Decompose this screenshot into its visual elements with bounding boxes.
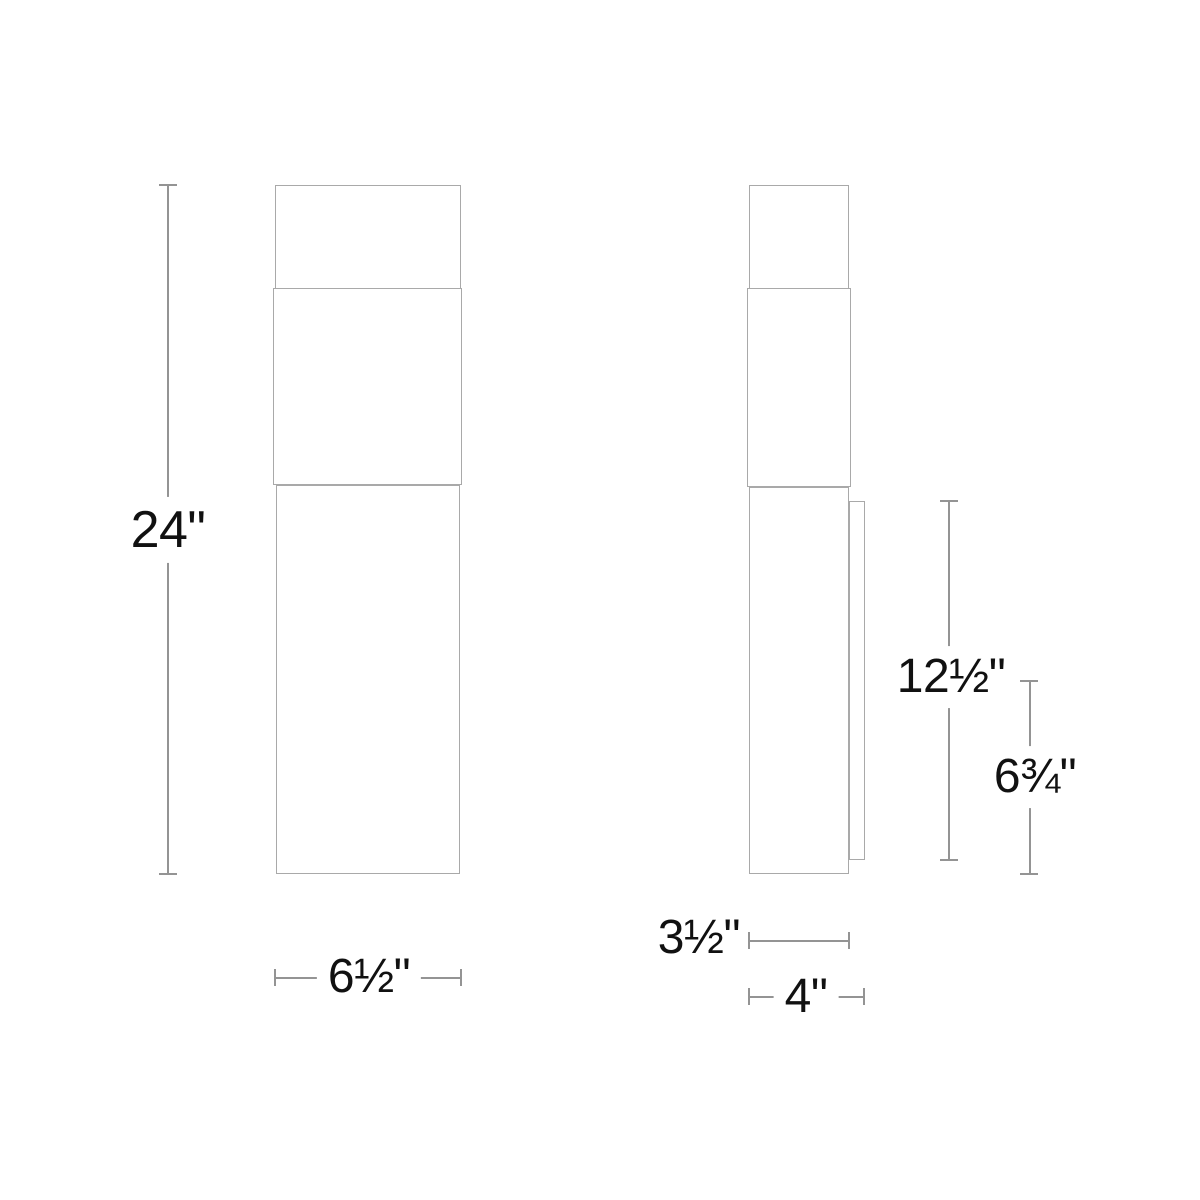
dim-overall-depth-label: 4" — [774, 971, 839, 1023]
dim-body-depth-label: 3½" — [658, 912, 740, 964]
dim-overall-height-tick-top — [159, 184, 177, 186]
front-view-top-cap — [275, 185, 461, 289]
dim-backplate-height-tick-bottom — [940, 859, 958, 861]
dim-center-height-tick-top — [1020, 680, 1038, 682]
dim-overall-depth-tick-right — [863, 988, 865, 1005]
dim-center-height-tick-bottom — [1020, 873, 1038, 875]
dim-backplate-height-tick-top — [940, 500, 958, 502]
side-view-backplate — [849, 501, 865, 860]
dim-overall-width-label: 6½" — [317, 951, 421, 1003]
dim-body-depth-tick-right — [848, 932, 850, 949]
dim-overall-height-tick-bottom — [159, 873, 177, 875]
side-view-top-cap — [749, 185, 849, 289]
dim-body-depth-tick-left — [748, 932, 750, 949]
dim-overall-width-tick-right — [460, 969, 462, 986]
dim-center-height-label: 6¾" — [994, 746, 1076, 808]
dim-overall-width-tick-left — [274, 969, 276, 986]
side-view-body — [749, 487, 849, 874]
dim-overall-depth-tick-left — [748, 988, 750, 1005]
dim-body-depth-line — [748, 940, 849, 942]
front-view-glass — [273, 288, 462, 485]
dim-overall-height-label: 24" — [131, 497, 206, 563]
dim-backplate-height-label: 12½" — [897, 646, 1005, 708]
dimension-drawing: 24" 6½" 12½" 6¾" 3½" 4" — [0, 0, 1200, 1200]
front-view-body — [276, 485, 460, 874]
side-view-glass — [747, 288, 851, 487]
